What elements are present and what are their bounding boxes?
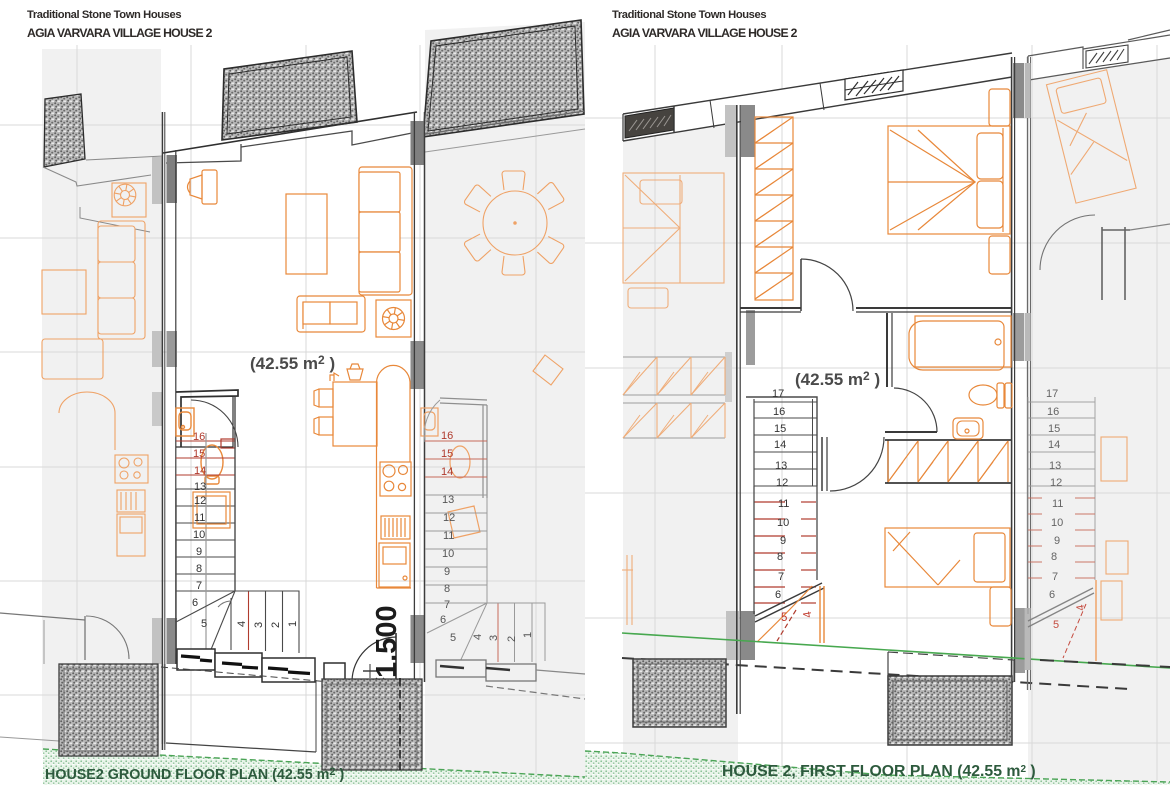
svg-text:13: 13 <box>194 481 206 493</box>
svg-text:11: 11 <box>1052 498 1063 510</box>
svg-text:8: 8 <box>777 551 783 563</box>
svg-text:15: 15 <box>1048 423 1060 435</box>
svg-text:9: 9 <box>444 566 450 578</box>
svg-text:8: 8 <box>1051 551 1057 563</box>
svg-text:17: 17 <box>1046 388 1058 400</box>
svg-text:10: 10 <box>777 517 789 529</box>
svg-text:17: 17 <box>772 388 784 400</box>
svg-text:13: 13 <box>1049 460 1061 472</box>
svg-text:11: 11 <box>443 530 454 542</box>
svg-text:13: 13 <box>442 494 454 506</box>
svg-text:8: 8 <box>196 563 202 575</box>
svg-text:4: 4 <box>236 621 248 627</box>
svg-text:1: 1 <box>287 621 299 627</box>
svg-text:6: 6 <box>440 614 446 626</box>
svg-text:15: 15 <box>774 423 786 435</box>
svg-text:HOUSE2 GROUND FLOOR PLAN (42.5: HOUSE2 GROUND FLOOR PLAN (42.55 m2 ) <box>45 766 345 783</box>
svg-text:9: 9 <box>196 546 202 558</box>
svg-text:7: 7 <box>196 580 202 592</box>
svg-text:14: 14 <box>1048 439 1060 451</box>
svg-text:16: 16 <box>441 430 453 442</box>
svg-text:3: 3 <box>488 635 500 641</box>
svg-text:15: 15 <box>441 448 453 460</box>
svg-text:1.500: 1.500 <box>371 605 403 678</box>
svg-text:3: 3 <box>253 622 265 628</box>
svg-text:10: 10 <box>193 529 205 541</box>
svg-text:6: 6 <box>775 589 781 601</box>
svg-text:9: 9 <box>1054 535 1060 547</box>
svg-text:14: 14 <box>441 466 453 478</box>
svg-text:7: 7 <box>444 599 450 611</box>
svg-text:14: 14 <box>194 465 206 477</box>
svg-text:2: 2 <box>270 622 282 628</box>
svg-text:AGIA VARVARA VILLAGE HOUSE 2: AGIA VARVARA VILLAGE HOUSE 2 <box>27 26 213 40</box>
svg-text:5: 5 <box>1053 619 1059 631</box>
svg-text:12: 12 <box>1050 477 1062 489</box>
svg-text:6: 6 <box>192 597 198 609</box>
svg-text:HOUSE 2, FIRST FLOOR PLAN (42.: HOUSE 2, FIRST FLOOR PLAN (42.55 m2 ) <box>722 763 1036 780</box>
svg-text:5: 5 <box>781 612 787 624</box>
svg-text:12: 12 <box>443 512 455 524</box>
svg-text:5: 5 <box>201 618 207 630</box>
svg-text:AGIA VARVARA VILLAGE HOUSE 2: AGIA VARVARA VILLAGE HOUSE 2 <box>612 26 798 40</box>
svg-text:2: 2 <box>506 636 518 642</box>
svg-text:12: 12 <box>776 477 788 489</box>
svg-text:14: 14 <box>774 439 786 451</box>
svg-text:7: 7 <box>1052 571 1058 583</box>
svg-text:16: 16 <box>773 406 785 418</box>
svg-text:Traditional Stone Town Houses: Traditional Stone Town Houses <box>612 9 766 21</box>
svg-text:12: 12 <box>194 495 206 507</box>
svg-text:6: 6 <box>1049 589 1055 601</box>
svg-text:1: 1 <box>522 632 534 638</box>
svg-text:4: 4 <box>472 634 484 640</box>
svg-text:16: 16 <box>1047 406 1059 418</box>
svg-text:8: 8 <box>444 583 450 595</box>
svg-text:9: 9 <box>780 535 786 547</box>
svg-text:10: 10 <box>442 548 454 560</box>
svg-text:10: 10 <box>1051 517 1063 529</box>
svg-text:11: 11 <box>778 498 789 510</box>
svg-text:5: 5 <box>450 632 456 644</box>
svg-text:16: 16 <box>193 431 205 443</box>
svg-text:Traditional Stone Town Houses: Traditional Stone Town Houses <box>27 9 181 21</box>
svg-text:11: 11 <box>194 512 205 524</box>
svg-text:13: 13 <box>775 460 787 472</box>
svg-text:7: 7 <box>778 571 784 583</box>
svg-text:15: 15 <box>193 448 205 460</box>
